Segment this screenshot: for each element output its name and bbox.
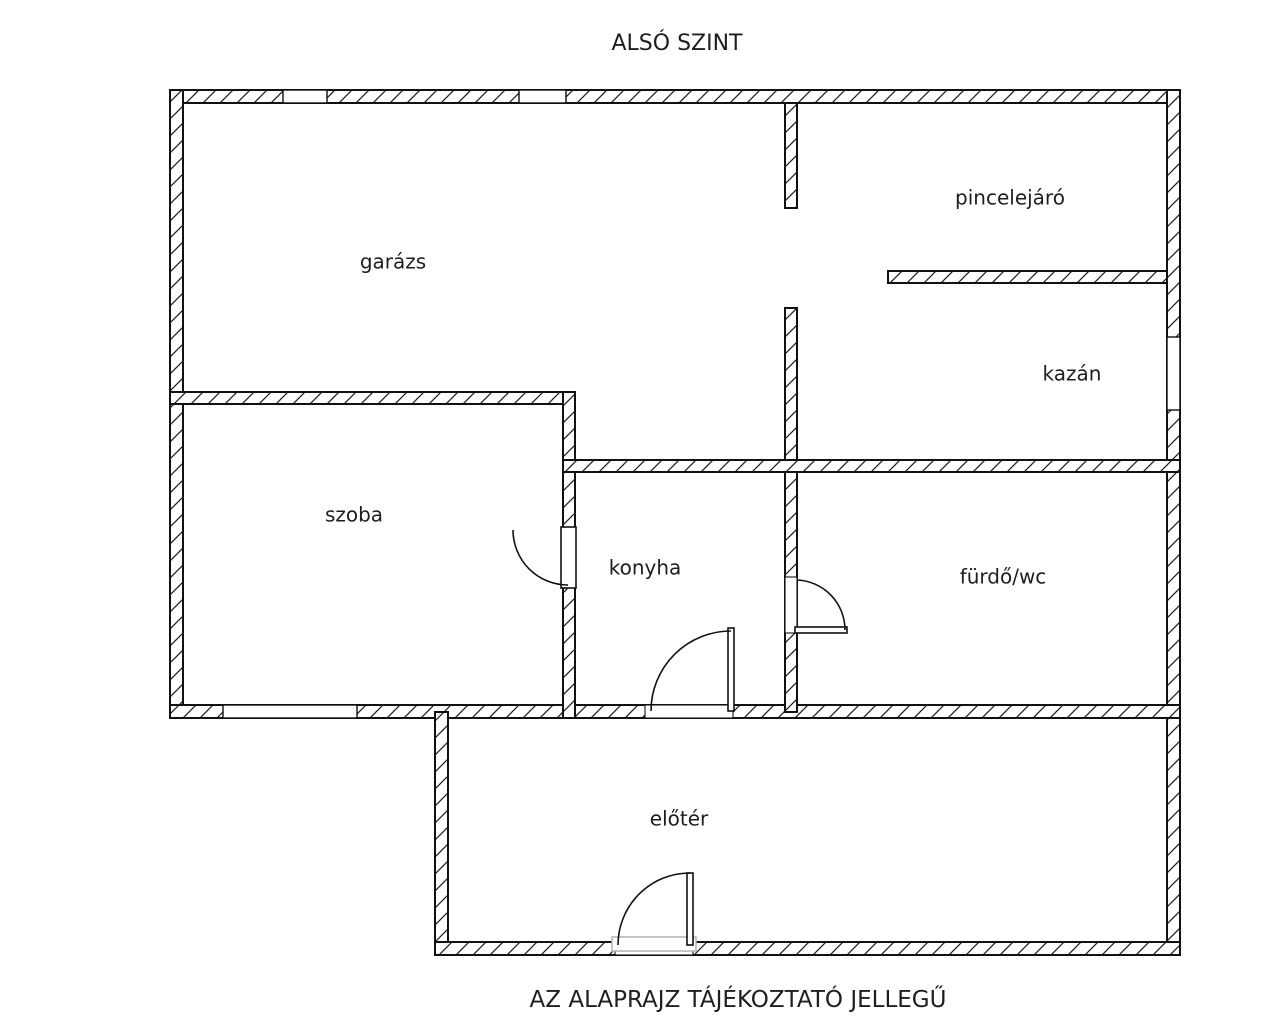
wall-pince-kazan-divider bbox=[888, 271, 1167, 283]
window-garage-window-2 bbox=[519, 90, 566, 103]
konyha-door-opening bbox=[645, 705, 733, 718]
floor-plan-page: garázspincelejárókazánszobakonyhafürdő/w… bbox=[0, 0, 1269, 1024]
entrance-door-swing-arc bbox=[618, 873, 690, 945]
wall-eloter-left bbox=[435, 712, 448, 955]
plan-footer: AZ ALAPRAJZ TÁJÉKOZTATÓ JELLEGŰ bbox=[530, 985, 947, 1013]
wall-garage-pince-lower bbox=[785, 308, 797, 462]
window-kazan-window bbox=[1167, 337, 1180, 410]
room-label-eloter: előtér bbox=[650, 807, 709, 831]
entrance-door-leaf bbox=[687, 873, 693, 945]
window-garage-window-1 bbox=[283, 90, 327, 103]
wall-eloter-bottom bbox=[435, 942, 1180, 955]
room-label-garazs: garázs bbox=[360, 250, 426, 274]
room-label-szoba: szoba bbox=[325, 503, 383, 527]
konyha-door-swing-arc bbox=[651, 631, 731, 711]
entrance-door-threshold bbox=[612, 937, 696, 951]
floor-plan-canvas: garázspincelejárókazánszobakonyhafürdő/w… bbox=[0, 0, 1269, 1024]
furdo-door-leaf bbox=[795, 627, 847, 633]
szoba-door-leaf bbox=[561, 527, 576, 588]
room-label-konyha: konyha bbox=[609, 556, 682, 580]
wall-garage-pince-upper bbox=[785, 103, 797, 208]
furdo-door-opening bbox=[785, 577, 797, 633]
room-label-furdo-wc: fürdő/wc bbox=[960, 565, 1047, 589]
szoba-door-swing-arc bbox=[513, 530, 568, 585]
wall-szoba-top bbox=[170, 392, 575, 404]
plan-title: ALSÓ SZINT bbox=[611, 30, 743, 56]
window-szoba-window bbox=[223, 705, 357, 718]
furdo-door-swing-arc bbox=[797, 580, 845, 630]
room-label-kazan: kazán bbox=[1043, 362, 1102, 386]
room-label-pincelejaro: pincelejáró bbox=[955, 186, 1065, 210]
wall-konyha-kazan-top bbox=[563, 460, 1180, 472]
konyha-door-leaf bbox=[728, 628, 734, 711]
wall-exterior-right bbox=[1167, 90, 1180, 955]
